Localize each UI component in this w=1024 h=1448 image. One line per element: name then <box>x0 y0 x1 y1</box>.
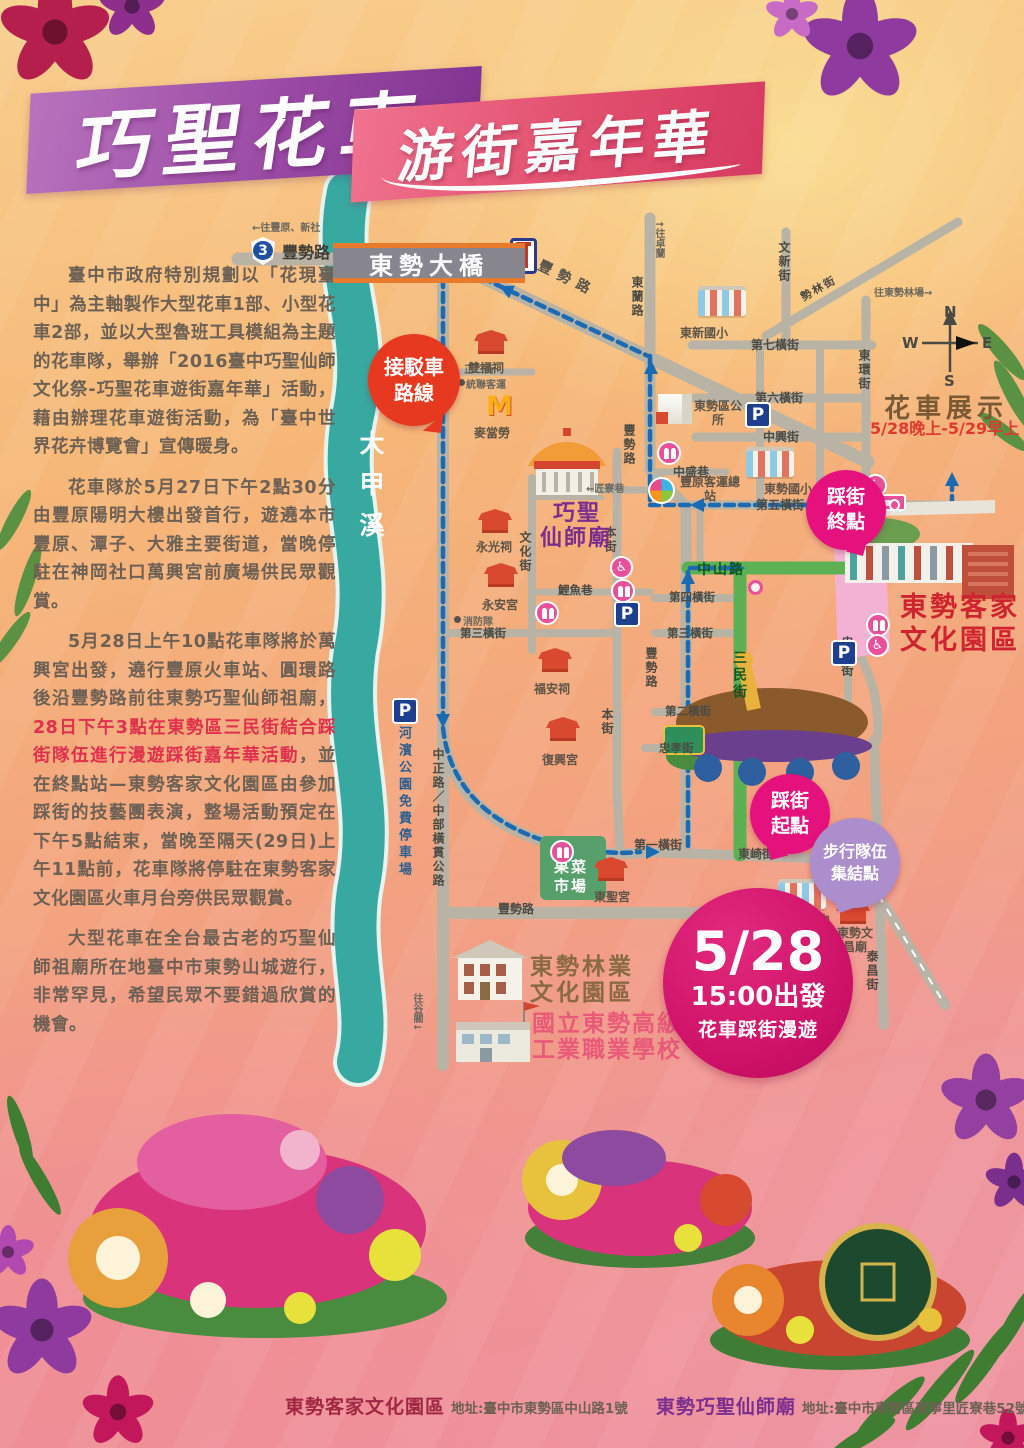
restroom-icon <box>611 579 635 603</box>
map-label: 中興街 <box>763 428 799 445</box>
parking-icon: P <box>614 601 640 627</box>
map-label: 統聯客運 <box>466 376 506 391</box>
map-label: 復興宮 <box>542 751 578 768</box>
map-label: 福安祠 <box>534 680 570 697</box>
parade-end-line1: 踩街 <box>827 485 865 510</box>
mcdonalds-icon: M <box>486 394 513 420</box>
map-label: 工業職業學校 <box>532 1030 682 1064</box>
map-label: 往東勢林場→ <box>874 284 932 299</box>
temple-icon <box>484 563 518 588</box>
map-label: ←往豐原、新社 <box>252 219 320 234</box>
map-label: 第七橫街 <box>751 336 799 353</box>
restroom-icon <box>657 441 681 465</box>
map-label: ↑往卓蘭 <box>651 220 666 258</box>
map-label: E <box>982 334 992 352</box>
map-label: 永光祠 <box>476 538 512 555</box>
parade-end-line2: 終點 <box>827 510 865 535</box>
map-label: 中山路 <box>697 559 745 579</box>
intro-p3-lead: 5月28日上午10點花車隊將於萬興宮出發，遶行豐原火車站、圓環路後沿豐勢路前往東… <box>33 632 336 709</box>
parking-icon: P <box>831 640 857 666</box>
parking-icon: P <box>392 698 418 724</box>
vocational-school-building <box>456 1002 540 1062</box>
map-label: 東新國小 <box>680 324 728 341</box>
map-label: 消防隊 <box>463 613 493 628</box>
map-label: 麥當勞 <box>474 424 510 441</box>
map-label: 東環街 <box>856 349 873 391</box>
map-label: 文新街 <box>776 241 793 283</box>
map-label: W <box>902 334 919 352</box>
dongshi-bridge-banner: 東勢大橋 <box>333 243 525 283</box>
map-label: 5/28晚上-5/29早上 <box>870 415 1019 439</box>
parade-start-line2: 起點 <box>771 814 809 839</box>
flower-float-2 <box>522 1130 755 1268</box>
wheelchair-icon <box>610 556 633 579</box>
temple-icon <box>594 857 628 882</box>
map-label: 中正路／中部橫貫公路 <box>430 748 447 888</box>
walking-assembly-line2: 集結點 <box>831 863 879 885</box>
map-label: 東勢區公所 <box>692 400 744 428</box>
map-label: 豐勢路 <box>621 424 638 466</box>
map-label: 文化街 <box>517 531 534 573</box>
bus-station-icon <box>648 477 675 504</box>
intro-paragraph-1: 臺中市政府特別規劃以「花現臺中」為主軸製作大型花車1部、小型花車2部，並以大型魯… <box>33 262 336 462</box>
footer-addresses: 東勢客家文化園區 地址:臺中市東勢區中山路1號 東勢巧聖仙師廟 地址:臺中市東勢… <box>285 1392 1005 1419</box>
map-label: 第一橫街 <box>634 836 682 853</box>
school-icon <box>698 290 746 316</box>
event-poster: 巧聖花車 游街嘉年華 臺中市政府特別規劃以「花現臺中」為主軸製作大型花車1部、小… <box>0 0 1024 1448</box>
map-label: 河濱公園免費停車場 <box>394 726 413 879</box>
shuttle-route-badge: 接駁車 路線 <box>368 334 460 426</box>
temple-icon <box>478 509 512 534</box>
map-label: 果菜市場 <box>551 858 591 896</box>
map-label: S <box>944 372 955 390</box>
map-label: 東蘭路 <box>629 276 646 318</box>
temple-icon <box>474 330 508 355</box>
map-label: 往谷關↓ <box>409 993 424 1031</box>
dajia-river <box>344 192 364 1062</box>
restroom-icon <box>535 601 559 625</box>
map-label: ←匠寮巷 <box>586 480 624 495</box>
intro-text-column: 臺中市政府特別規劃以「花現臺中」為主軸製作大型花車1部、小型花車2部，並以大型魯… <box>33 262 336 1051</box>
parade-end-badge: 踩街 終點 <box>806 470 886 550</box>
map-label: 仙師廟 <box>540 520 612 552</box>
temple-icon <box>538 648 572 673</box>
government-office-icon <box>658 394 692 424</box>
map-label: 文化園區 <box>530 973 634 1007</box>
forestry-park-building <box>452 940 528 1000</box>
flower-float-1 <box>68 1114 447 1338</box>
highway-3-shield-icon: 3 <box>250 237 276 265</box>
event-desc: 花車踩街漫遊 <box>698 1015 818 1042</box>
river-name-label: 大甲溪 <box>352 430 388 553</box>
intro-paragraph-4: 大型花車在全台最古老的巧聖仙師祖廟所在地臺中市東勢山城遊行，非常罕見，希望民眾不… <box>33 925 336 1039</box>
map-label: 東勢國小 <box>764 480 812 497</box>
map-label: 豐勢路 <box>643 647 660 689</box>
map-label: N <box>944 303 957 321</box>
intro-p3-highlight: 28日下午3點在東勢區三民街結合踩街隊伍進行漫遊踩街嘉年華活動 <box>33 718 336 767</box>
intro-p3-tail: ，並在終點站—東勢客家文化園區由參加踩街的技藝團表演，整場活動預定在下午5點結束… <box>33 746 336 909</box>
venue2-name: 東勢巧聖仙師廟 <box>656 1392 796 1419</box>
shuttle-badge-line1: 接駁車 <box>384 354 444 380</box>
map-label: 第四橫街 <box>669 589 715 605</box>
flower-float-3 <box>710 1226 970 1370</box>
temple-icon <box>546 717 580 742</box>
map-label: 東聖宮 <box>594 888 630 905</box>
highway-road-label: 豐勢路 <box>282 239 330 263</box>
intro-paragraph-3: 5月28日上午10點花車隊將於萬興宮出發，遶行豐原火車站、圓環路後沿豐勢路前往東… <box>33 628 336 913</box>
map-label: 第三橫街 <box>667 625 713 641</box>
map-label: 三民街 <box>729 650 749 701</box>
map-label: 雙福祠 <box>468 359 504 376</box>
map-label: 本街 <box>599 708 616 736</box>
event-date: 5/28 <box>692 924 824 981</box>
school-icon <box>746 451 794 477</box>
event-time: 15:00出發 <box>691 981 826 1015</box>
map-label: 第二橫街 <box>665 703 711 719</box>
wheelchair-icon <box>866 634 889 657</box>
map-label: 豐原客運總站 <box>678 476 742 504</box>
map-label: 鯉魚巷 <box>558 582 593 598</box>
map-label: 泰昌街 <box>864 950 881 992</box>
route-marker-icon <box>748 580 763 595</box>
map-label: 豐勢路 <box>498 900 534 917</box>
restroom-icon <box>550 840 574 864</box>
map-label: 忠孝街 <box>659 740 694 756</box>
map-label: 永安宮 <box>482 596 518 613</box>
highway-marker: 3 豐勢路 <box>250 237 330 265</box>
intro-paragraph-2: 花車隊於5月27日下午2點30分由豐原陽明大樓出發首行，遊遶本市豐原、潭子、大雅… <box>33 474 336 617</box>
map-label: 第五橫街 <box>756 496 804 513</box>
venue1-address: 地址:臺中市東勢區中山路1號 <box>451 1397 628 1417</box>
venue1-name: 東勢客家文化園區 <box>285 1392 445 1419</box>
shuttle-badge-line2: 路線 <box>394 380 434 406</box>
parking-icon: P <box>745 402 771 428</box>
poi-dot-icon <box>454 616 461 623</box>
parade-start-line1: 踩街 <box>771 789 809 814</box>
walking-assembly-line1: 步行隊伍 <box>823 841 887 863</box>
map-label: 文化園區 <box>900 618 1020 657</box>
venue2-address: 地址:臺中市東勢區東寧里匠寮巷52號 <box>802 1397 1024 1417</box>
walking-assembly-badge: 步行隊伍 集結點 <box>810 818 900 908</box>
